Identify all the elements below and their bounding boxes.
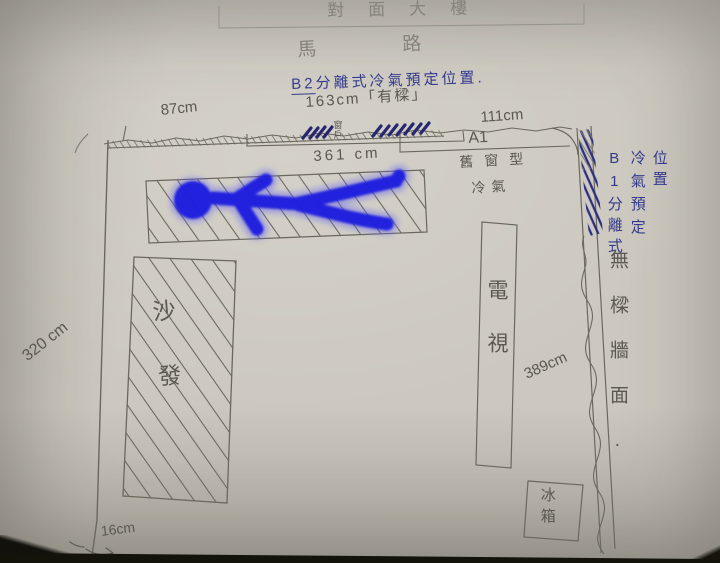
fridge-label: 冰箱 bbox=[539, 487, 555, 529]
tv-label: 電視 bbox=[485, 279, 507, 385]
b1-note-col2: 冷氣預定 bbox=[629, 150, 645, 242]
b1-note-col3: 位置 bbox=[651, 150, 667, 192]
a1-ac-label: 冷氣 bbox=[471, 178, 512, 195]
floor-plan-sketch-photo: 對面大樓 馬路 B2分離式冷氣預定位置. 163cm「有樑」 87cm 111c… bbox=[0, 0, 720, 563]
b2-code: B2 bbox=[291, 75, 316, 95]
corner-stroke bbox=[75, 134, 88, 153]
dim-tick-87 bbox=[123, 126, 126, 141]
dim-top-right: 111cm bbox=[480, 107, 524, 126]
a1-code: A1 bbox=[468, 130, 488, 148]
right-wall-note: 無樑牆面. bbox=[607, 250, 627, 477]
dim-inner-width: 361 cm bbox=[313, 145, 381, 164]
wall-corner-hook bbox=[552, 128, 578, 155]
b1-note-col1: B1分離式 bbox=[606, 150, 622, 259]
right-wall-pencil-hatch bbox=[578, 128, 596, 171]
window-mark: 窗戶 bbox=[332, 120, 341, 140]
right-wall-wavy-line bbox=[582, 236, 605, 554]
building-label: 對面大樓 bbox=[327, 0, 491, 20]
left-wall bbox=[92, 140, 108, 556]
